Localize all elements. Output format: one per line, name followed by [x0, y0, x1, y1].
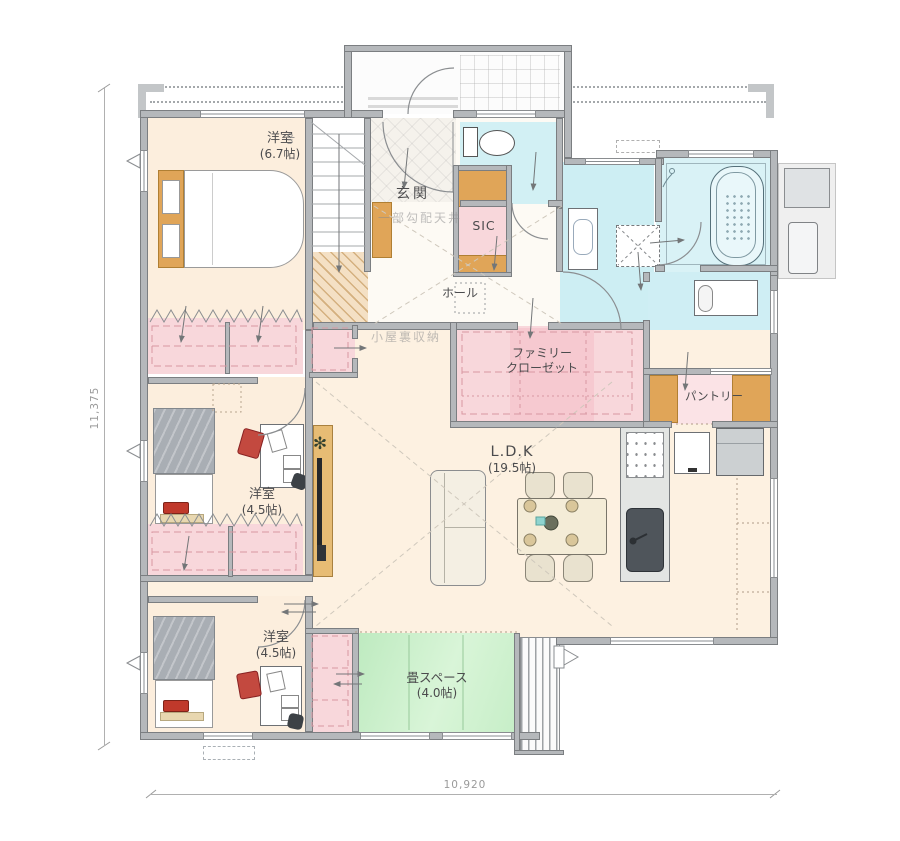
- label-family-closet: ファミリー クローゼット: [492, 346, 592, 376]
- ldk-size: (19.5帖): [457, 461, 567, 476]
- bedroom-mid-name: 洋室: [212, 487, 312, 503]
- bedroom-south-name: 洋室: [226, 630, 326, 646]
- tatami-name: 畳スペース: [382, 670, 492, 686]
- bedroom-main-size: (6.7帖): [225, 147, 335, 162]
- dashed-square: [213, 384, 241, 412]
- label-hall: ホール: [428, 286, 492, 301]
- label-entrance: 玄関: [368, 186, 458, 204]
- label-stairs-up: up: [285, 131, 296, 147]
- bedroom-mid-size: (4.5帖): [212, 503, 312, 518]
- bedroom-main-name: 洋室: [225, 131, 335, 147]
- dimension-line-vertical: [104, 88, 105, 746]
- family-closet-line1: ファミリー: [492, 346, 592, 361]
- family-closet-line2: クローゼット: [492, 361, 592, 376]
- dimension-vertical: 11,375: [89, 373, 101, 443]
- label-tatami: 畳スペース (4.0帖): [382, 670, 492, 701]
- label-bedroom-south: 洋室 (4.5帖): [226, 630, 326, 661]
- folding-door: [150, 310, 302, 322]
- dimension-line-horizontal: [150, 794, 777, 795]
- washer-cross: [618, 227, 658, 265]
- label-bedroom-mid: 洋室 (4.5帖): [212, 487, 312, 518]
- sloped-ceiling-marks: [316, 206, 612, 626]
- floor-plan: ✻: [0, 0, 900, 841]
- tatami-size: (4.0帖): [382, 686, 492, 701]
- plan-linework: [0, 0, 900, 841]
- label-pantry: パントリー: [678, 389, 750, 403]
- ldk-name: L.D.K: [457, 443, 567, 461]
- label-attic-storage: 小屋裏収納: [348, 330, 464, 345]
- label-sic: SIC: [458, 218, 510, 234]
- label-bedroom-main: 洋室 (6.7帖): [225, 131, 335, 162]
- label-ldk: L.D.K (19.5帖): [457, 443, 567, 476]
- bedroom-south-size: (4.5帖): [226, 646, 326, 661]
- dimension-horizontal: 10,920: [425, 779, 505, 791]
- flow-arrows: [181, 148, 688, 684]
